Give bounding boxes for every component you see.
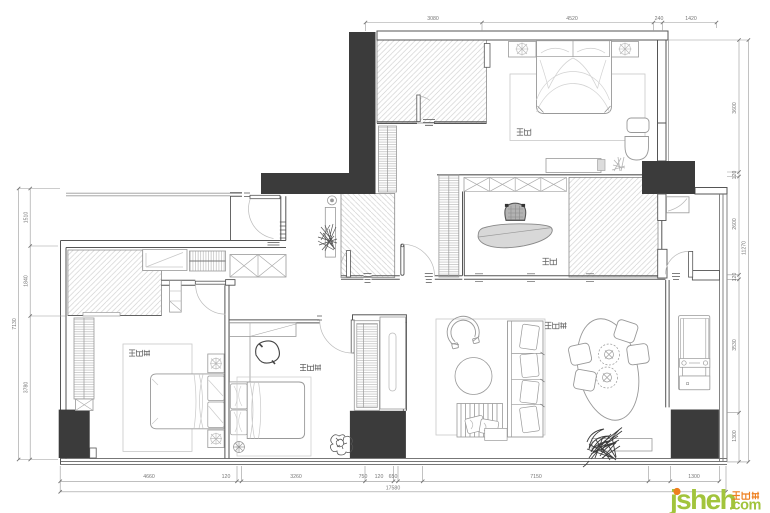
svg-text:7130: 7130 [12, 318, 18, 330]
svg-text:120: 120 [222, 474, 231, 480]
svg-text:120: 120 [375, 474, 384, 480]
svg-text:240: 240 [655, 16, 664, 22]
svg-text:.com: .com [729, 498, 761, 513]
svg-text:3080: 3080 [427, 16, 439, 22]
svg-text:3600: 3600 [732, 102, 738, 114]
svg-text:2600: 2600 [732, 218, 738, 230]
svg-text:120: 120 [732, 171, 738, 180]
svg-text:1510: 1510 [24, 212, 30, 224]
svg-text:750: 750 [359, 474, 368, 480]
svg-text:17580: 17580 [386, 486, 401, 492]
svg-text:1300: 1300 [688, 474, 700, 480]
svg-text:3530: 3530 [732, 339, 738, 351]
svg-text:3260: 3260 [290, 474, 302, 480]
svg-text:4660: 4660 [143, 474, 155, 480]
svg-text:11270: 11270 [741, 241, 747, 255]
svg-text:120: 120 [732, 273, 738, 282]
svg-text:650: 650 [389, 474, 398, 480]
svg-text:3780: 3780 [24, 382, 30, 394]
svg-text:1300: 1300 [732, 430, 738, 442]
svg-text:1420: 1420 [685, 16, 697, 22]
svg-text:4520: 4520 [566, 16, 578, 22]
svg-text:jsheh: jsheh [669, 484, 736, 513]
svg-text:7150: 7150 [530, 474, 542, 480]
svg-text:1840: 1840 [24, 275, 30, 287]
